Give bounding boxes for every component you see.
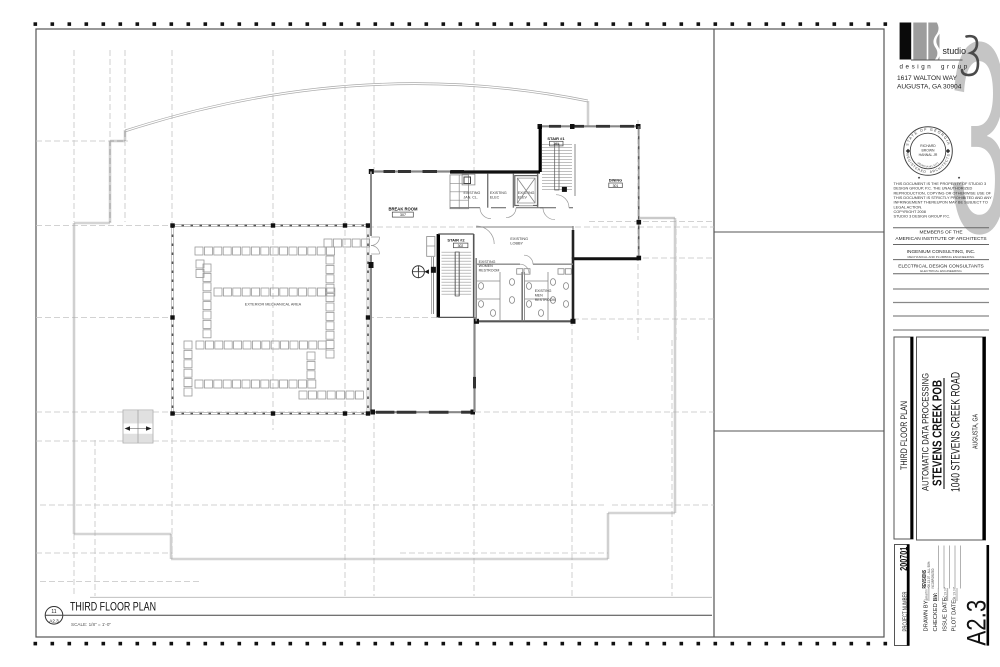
- svg-text:JAN. CL.: JAN. CL.: [464, 196, 478, 200]
- svg-text:DINING: DINING: [609, 179, 622, 183]
- svg-text:EXISTING: EXISTING: [535, 289, 552, 293]
- svg-text:PROJECT NUMBER: PROJECT NUMBER: [902, 591, 909, 631]
- svg-text:MEN: MEN: [535, 293, 543, 297]
- svg-text:EXISTING: EXISTING: [479, 260, 496, 264]
- svg-text:11: 11: [51, 609, 56, 615]
- svg-text:amartin: amartin: [925, 589, 929, 600]
- svg-text:RESTROOM: RESTROOM: [535, 298, 556, 302]
- svg-text:COPYRIGHT 2008: COPYRIGHT 2008: [894, 210, 926, 214]
- svg-text:LEGAL ACTION.: LEGAL ACTION.: [894, 205, 923, 209]
- svg-text:RESTROOM: RESTROOM: [479, 269, 500, 273]
- svg-text:studio: studio: [943, 46, 967, 56]
- svg-text:EXISTING: EXISTING: [518, 191, 535, 195]
- svg-text:SCALE: 1/8" = 1'-0": SCALE: 1/8" = 1'-0": [71, 622, 111, 627]
- svg-text:STAIR #1: STAIR #1: [547, 136, 565, 141]
- svg-text:STAIR #2: STAIR #2: [447, 238, 465, 243]
- svg-text:200701: 200701: [899, 546, 910, 570]
- svg-text:AUGUSTA, GA: AUGUSTA, GA: [971, 413, 980, 449]
- svg-text:BREAK ROOM: BREAK ROOM: [388, 207, 418, 212]
- svg-text:RBH: RBH: [934, 593, 938, 601]
- svg-text:EXISTING: EXISTING: [510, 237, 528, 241]
- svg-text:3: 3: [949, 0, 1000, 291]
- svg-text:301: 301: [613, 184, 619, 188]
- svg-text:1040 STEVENS CREEK ROAD: 1040 STEVENS CREEK ROAD: [951, 372, 963, 492]
- svg-text:PLOT DATE:: PLOT DATE:: [952, 598, 958, 632]
- svg-text:EXISTING: EXISTING: [490, 191, 507, 195]
- svg-text:MECHANICAL AND PLUMBING ENGINE: MECHANICAL AND PLUMBING ENGINEERING: [908, 255, 976, 259]
- svg-text:302: 302: [458, 244, 464, 248]
- svg-text:THIRD FLOOR PLAN: THIRD FLOOR PLAN: [70, 602, 156, 614]
- svg-text:1617 WALTON WAY: 1617 WALTON WAY: [897, 75, 958, 82]
- svg-text:INFRINGEMENT THEREUPON MAY BE: INFRINGEMENT THEREUPON MAY BE SUBJECT TO: [894, 201, 988, 205]
- svg-text:STUDIO 3 DESIGN GROUP P.C.: STUDIO 3 DESIGN GROUP P.C.: [894, 215, 951, 219]
- svg-text:THIS DOCUMENT IS STRICTLY PROH: THIS DOCUMENT IS STRICTLY PROHIBITED AND…: [894, 196, 993, 200]
- svg-text:307: 307: [400, 213, 406, 217]
- svg-text:08.13.07: 08.13.07: [943, 587, 947, 600]
- svg-text:3: 3: [418, 268, 420, 272]
- svg-text:THIRD FLOOR PLAN: THIRD FLOOR PLAN: [899, 401, 909, 470]
- svg-text:DESIGN GROUP, P.C. THE UNAUTHO: DESIGN GROUP, P.C. THE UNAUTHORIZED: [894, 187, 973, 191]
- svg-text:HANNAL JR: HANNAL JR: [919, 153, 938, 157]
- svg-text:THIS DOCUMENT IS THE PROPERTY: THIS DOCUMENT IS THE PROPERTY OF STUDIO …: [894, 182, 987, 186]
- svg-text:EXISTING: EXISTING: [464, 191, 481, 195]
- svg-text:MEMBERS OF THE: MEMBERS OF THE: [919, 230, 962, 236]
- svg-text:301: 301: [553, 142, 559, 146]
- svg-text:LOBBY: LOBBY: [510, 242, 523, 246]
- svg-text:A2.3: A2.3: [49, 618, 59, 623]
- svg-text:ELEC: ELEC: [490, 196, 500, 200]
- svg-text:STEVENS CREEK POB: STEVENS CREEK POB: [930, 380, 945, 486]
- svg-text:ELECTRICAL ENGINEERING: ELECTRICAL ENGINEERING: [920, 269, 962, 273]
- svg-text:EXTERIOR MECHANICAL AREA: EXTERIOR MECHANICAL AREA: [245, 303, 302, 307]
- svg-text:REPRODUCTION, COPYING OR OTHER: REPRODUCTION, COPYING OR OTHERWISE USE O…: [894, 191, 992, 195]
- svg-text:DRAWN BY:: DRAWN BY:: [924, 599, 930, 632]
- svg-text:RICHARD: RICHARD: [920, 144, 936, 148]
- svg-text:WOMEN: WOMEN: [479, 264, 494, 268]
- svg-text:BROWN: BROWN: [922, 148, 936, 152]
- svg-text:AUGUSTA, GA 30904: AUGUSTA, GA 30904: [897, 84, 962, 91]
- svg-text:group: group: [941, 64, 970, 71]
- svg-text:08.13.07: 08.13.07: [953, 587, 957, 600]
- svg-text:INCORPORATED: INCORPORATED: [931, 568, 935, 589]
- svg-text:design: design: [900, 64, 934, 71]
- svg-text:AMERICAN INSTITUTE OF ARCHITEC: AMERICAN INSTITUTE OF ARCHITECTS: [895, 236, 986, 242]
